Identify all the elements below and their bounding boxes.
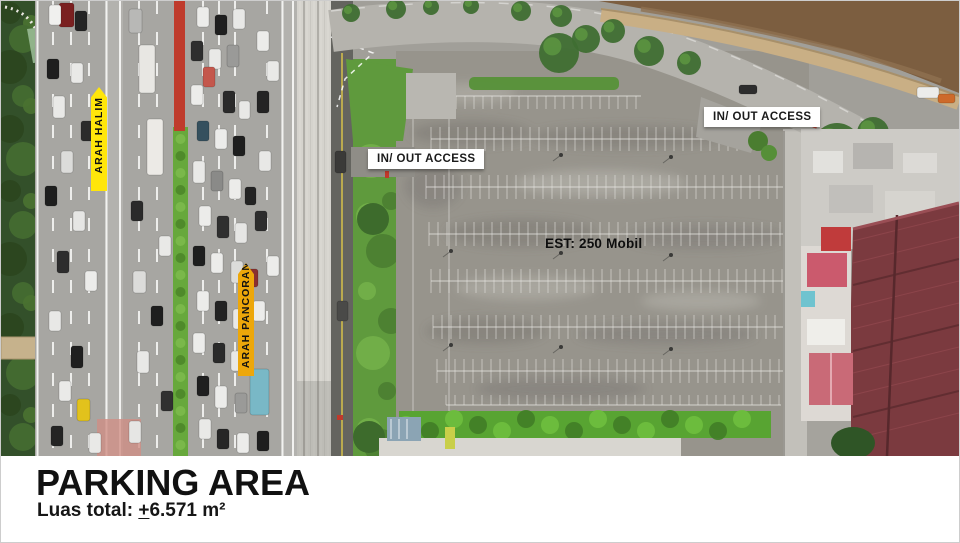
access-label-left: IN/ OUT ACCESS xyxy=(368,149,484,169)
direction-banner-halim-label: ARAH HALIM xyxy=(93,97,105,182)
slide: ARAH HALIM ARAH PANCORAN IN/ OUT ACCESS … xyxy=(0,0,960,543)
access-label-right: IN/ OUT ACCESS xyxy=(704,107,820,127)
caption-area: PARKING AREA Luas total: +6.571 m² xyxy=(1,456,959,542)
total-area-value: 6.571 m² xyxy=(149,500,225,521)
total-area-prefix: Luas total: xyxy=(37,500,138,521)
direction-banner-pancoran: ARAH PANCORAN xyxy=(238,263,254,376)
total-area-text: Luas total: +6.571 m² xyxy=(37,500,226,522)
plus-minus-sign: + xyxy=(138,500,149,521)
page-title: PARKING AREA xyxy=(36,462,310,504)
direction-banner-halim: ARAH HALIM xyxy=(91,87,107,191)
capacity-note: EST: 250 Mobil xyxy=(545,236,642,251)
direction-banner-pancoran-label: ARAH PANCORAN xyxy=(240,262,252,376)
aerial-photo: ARAH HALIM ARAH PANCORAN IN/ OUT ACCESS … xyxy=(1,1,959,456)
